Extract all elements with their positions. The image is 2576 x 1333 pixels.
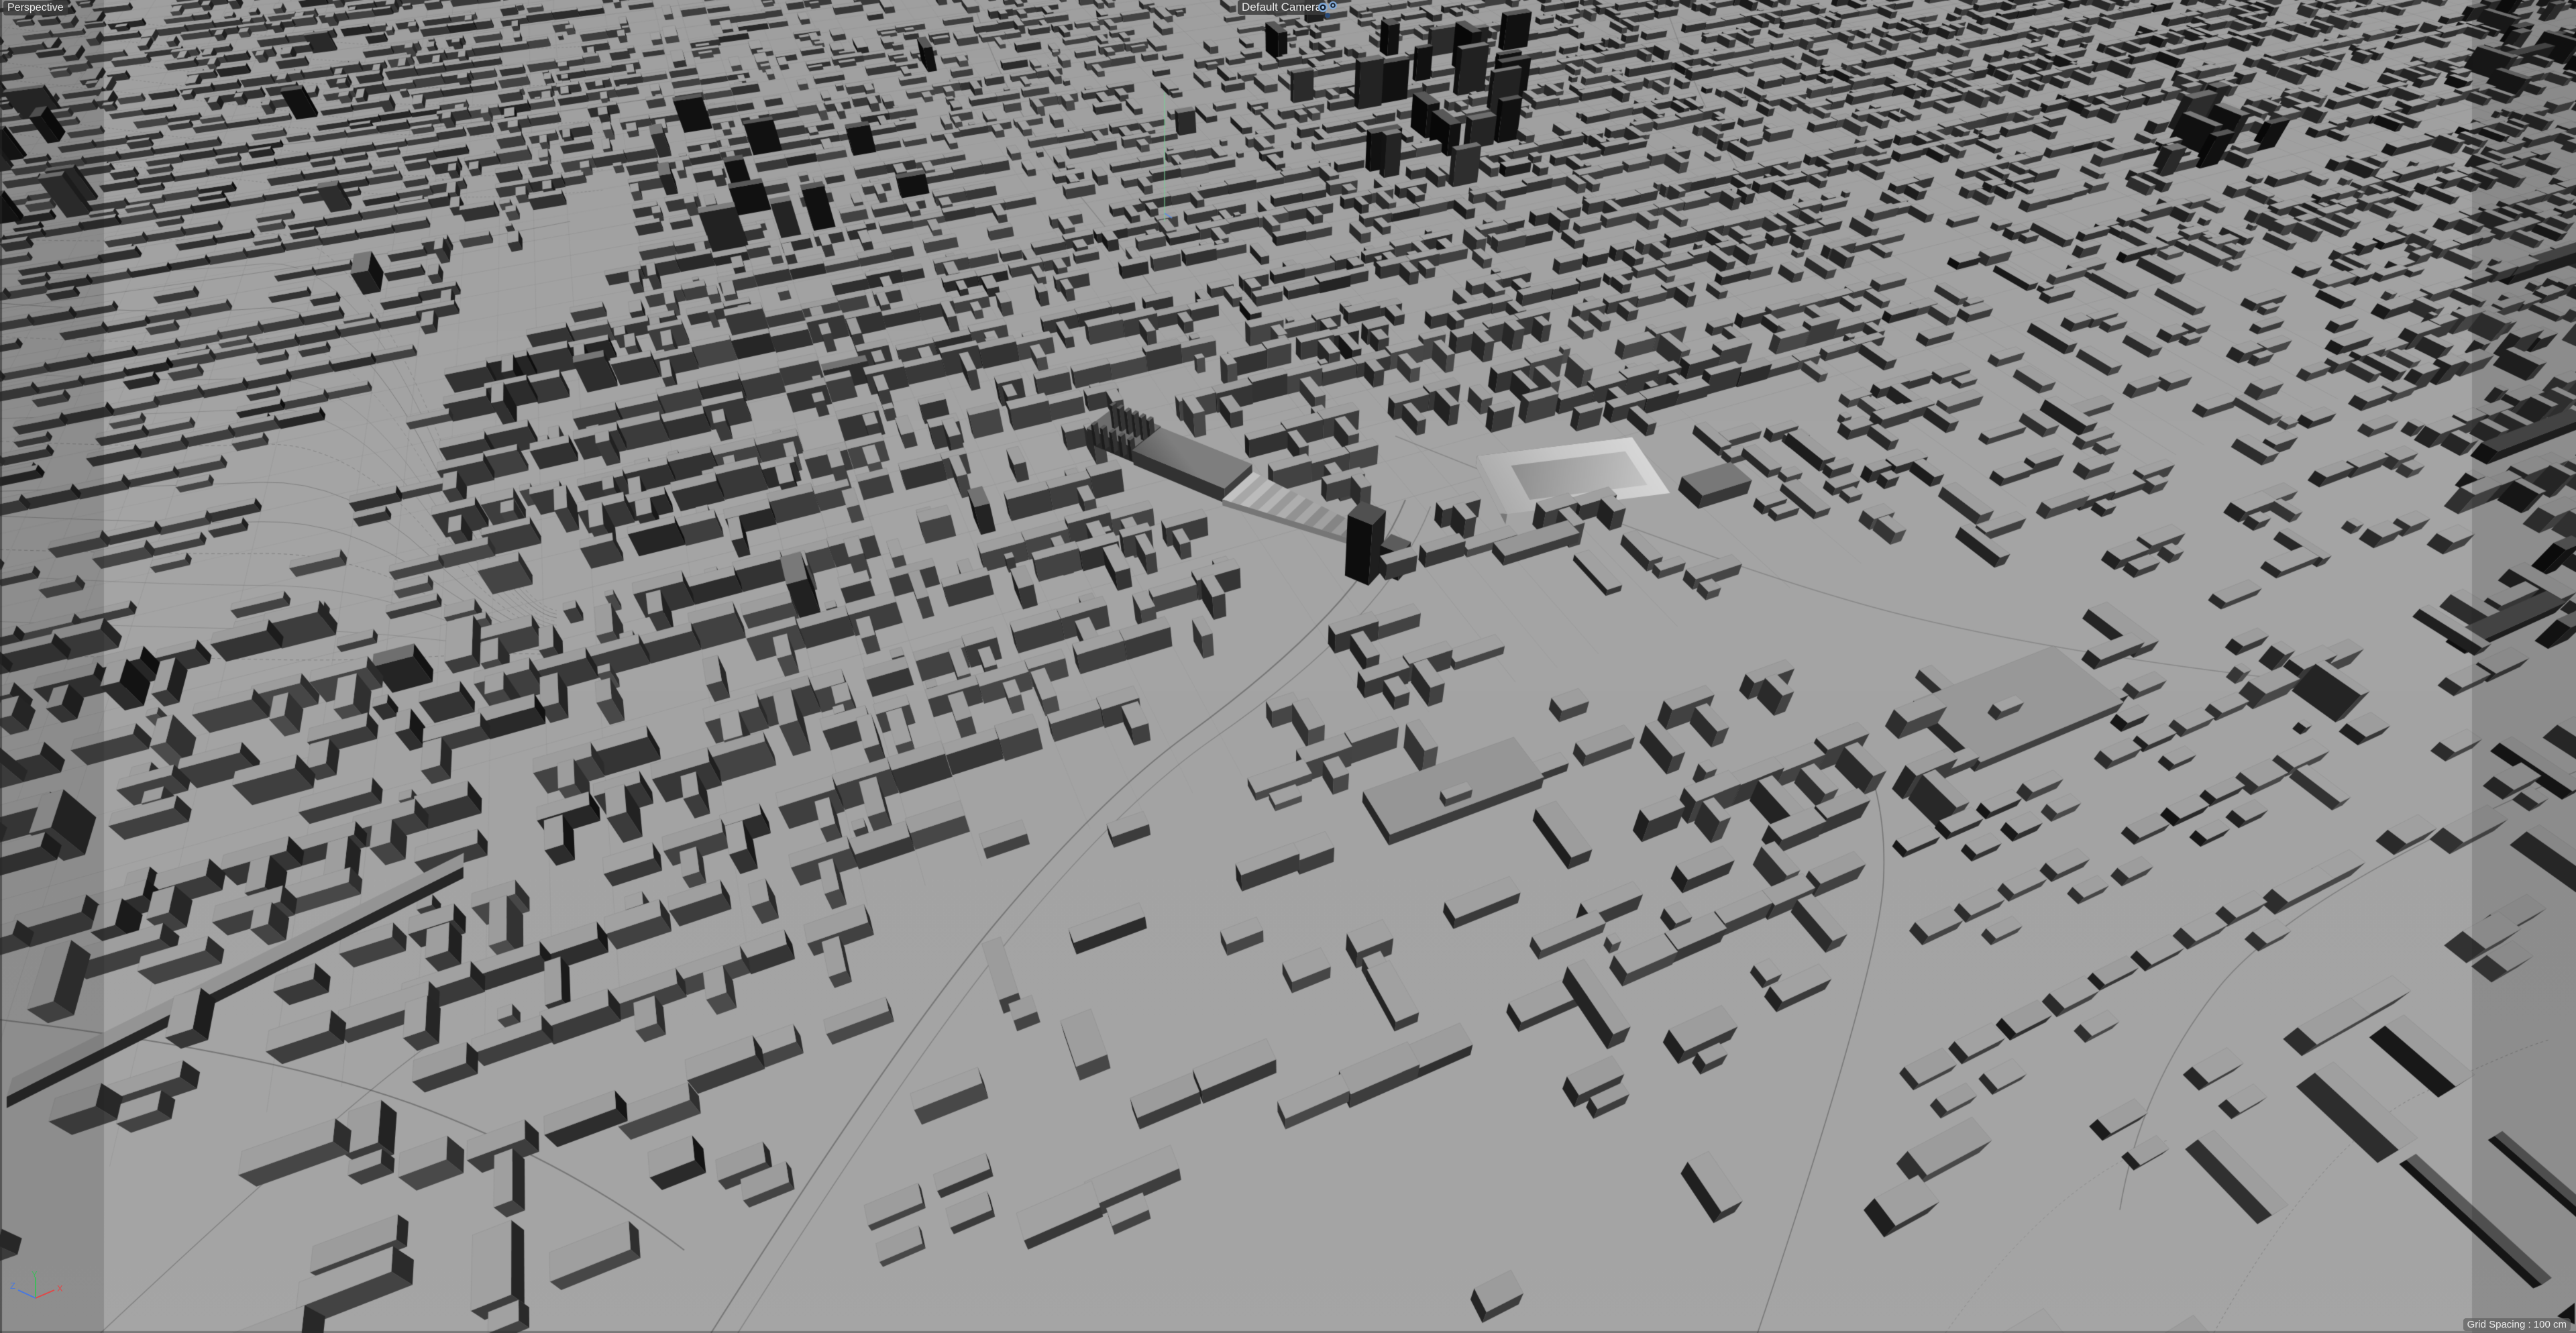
svg-text:X: X bbox=[57, 1283, 63, 1293]
svg-text:Z: Z bbox=[10, 1281, 15, 1291]
svg-text:Y: Y bbox=[32, 1270, 38, 1279]
